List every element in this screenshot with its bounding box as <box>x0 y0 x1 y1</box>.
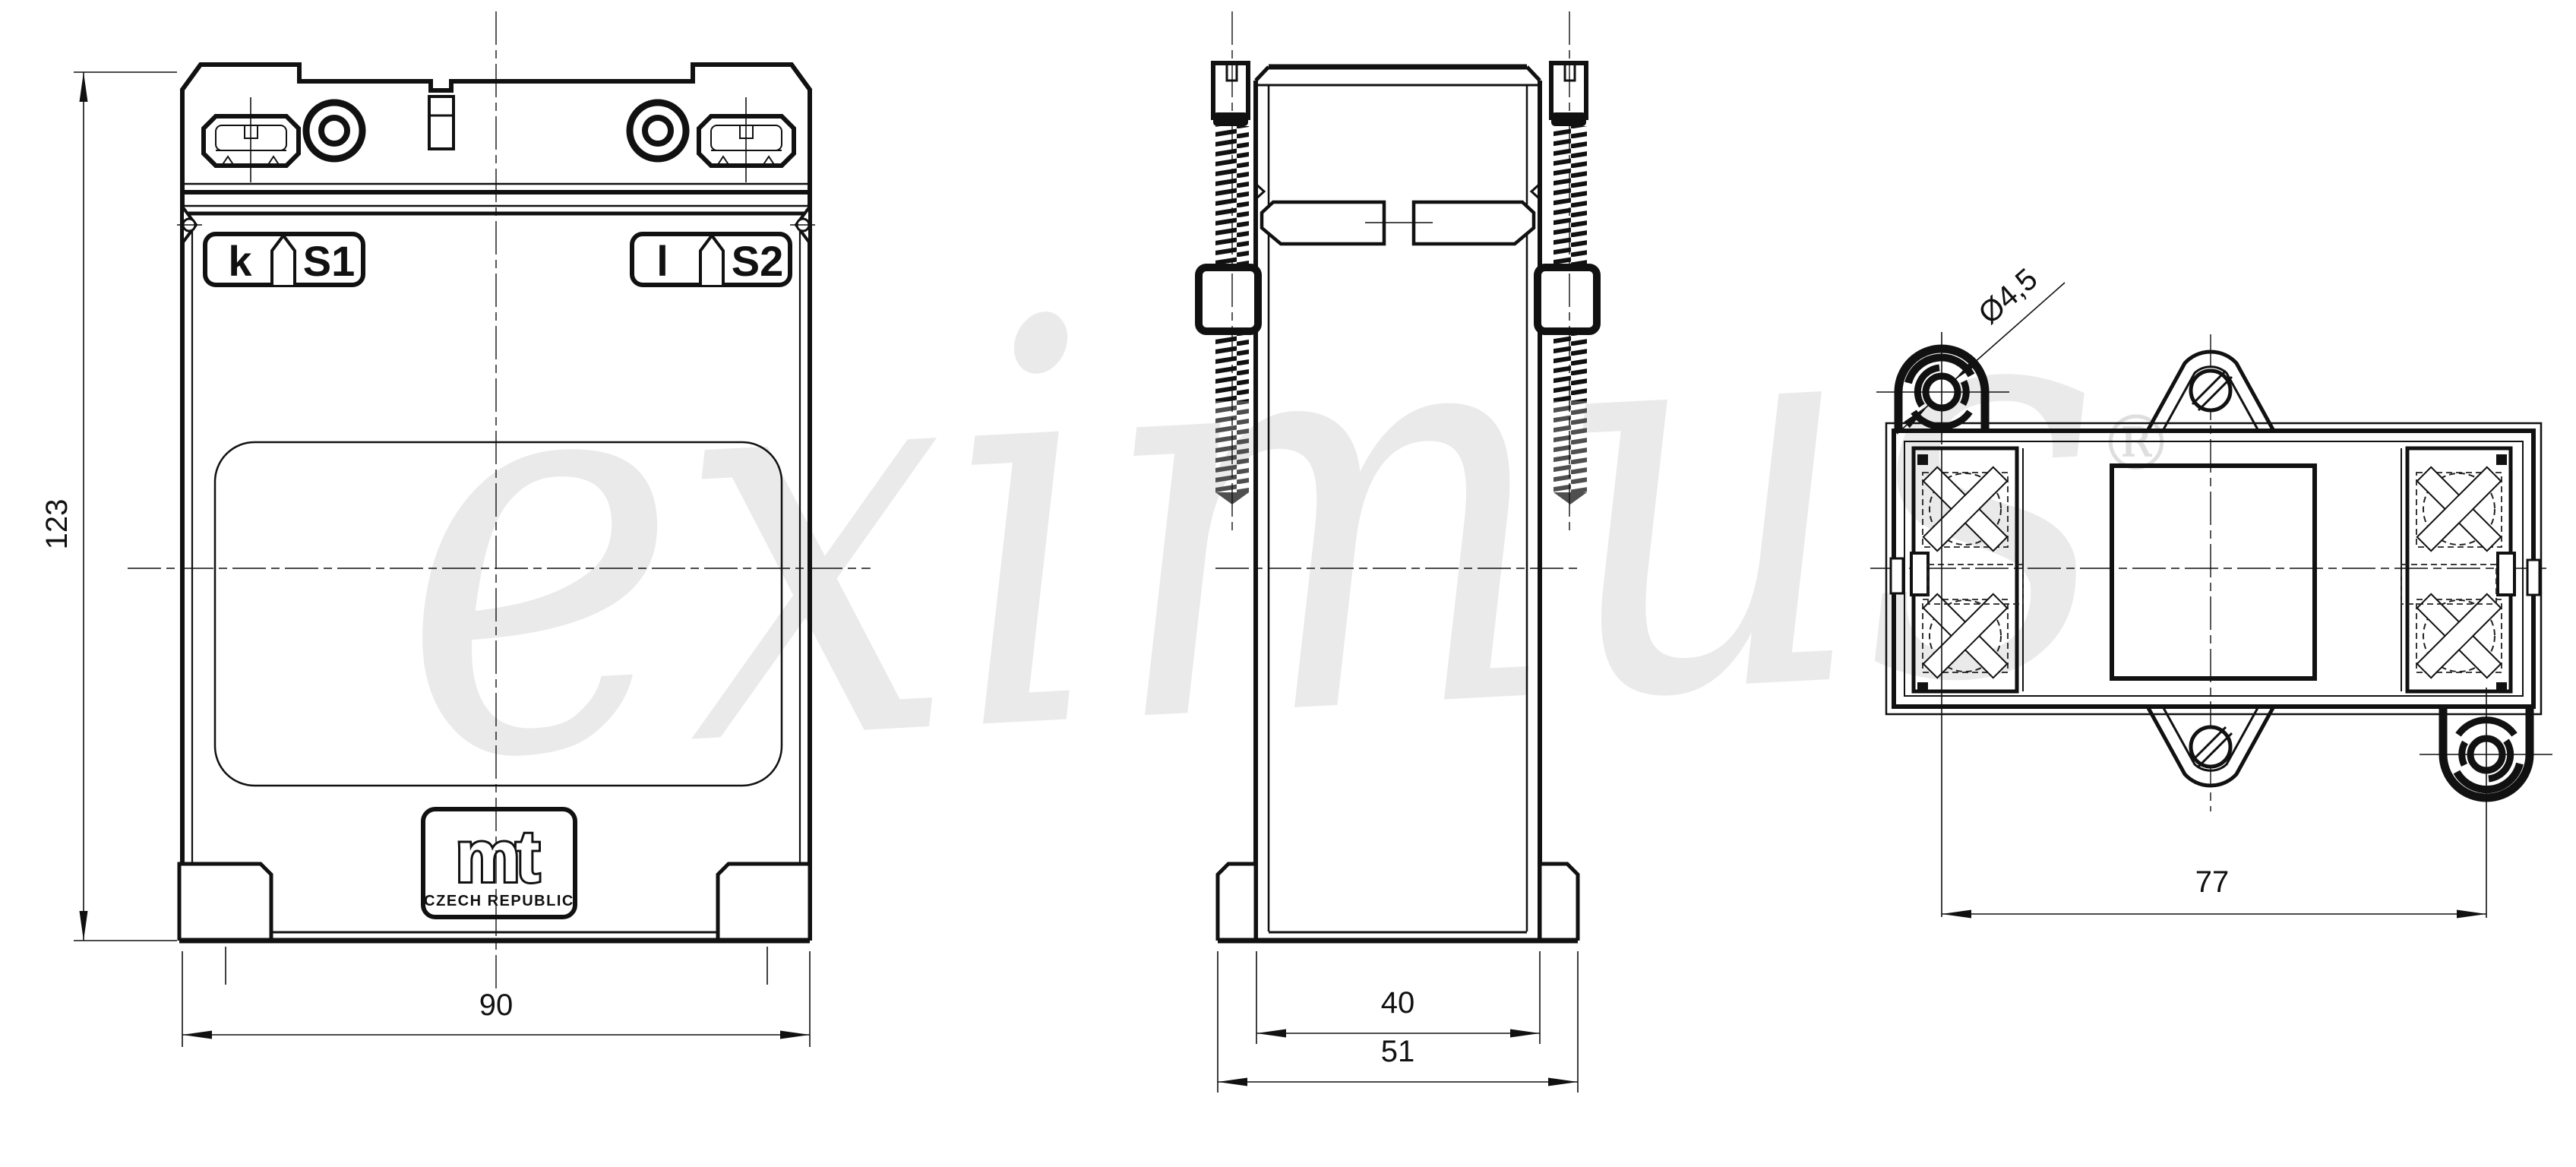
brand-logo-text: mt <box>455 816 539 897</box>
terminal-letter-k: k <box>228 237 252 285</box>
dim-77-label: 77 <box>2195 865 2230 899</box>
sealing-screw-slot <box>429 96 454 149</box>
screw-head <box>1213 63 1248 118</box>
dim-40-label: 40 <box>1381 986 1415 1020</box>
dim-90-label: 90 <box>479 988 514 1022</box>
clamp-bracket-right <box>1538 267 1597 331</box>
dim-123-label: 123 <box>40 499 74 550</box>
clamp-bracket-left <box>1199 267 1258 331</box>
brand-logo-country: CZECH REPUBLIC <box>424 893 574 909</box>
ct-transformer-drawing: eximus ® <box>0 0 2576 1167</box>
engineering-drawing-page: eximus ® <box>0 0 2576 1167</box>
terminal-name-s2: S2 <box>732 237 784 285</box>
terminal-letter-l: l <box>656 237 668 285</box>
seal-screw-icon <box>2191 371 2230 410</box>
terminal-name-s1: S1 <box>303 237 356 285</box>
seal-screw-icon <box>2191 727 2230 767</box>
brand-logo: mt CZECH REPUBLIC <box>423 809 575 917</box>
dim-51-label: 51 <box>1381 1035 1415 1068</box>
terminal-label-right: l S2 <box>632 234 790 285</box>
terminal-label-left: k S1 <box>205 234 363 285</box>
